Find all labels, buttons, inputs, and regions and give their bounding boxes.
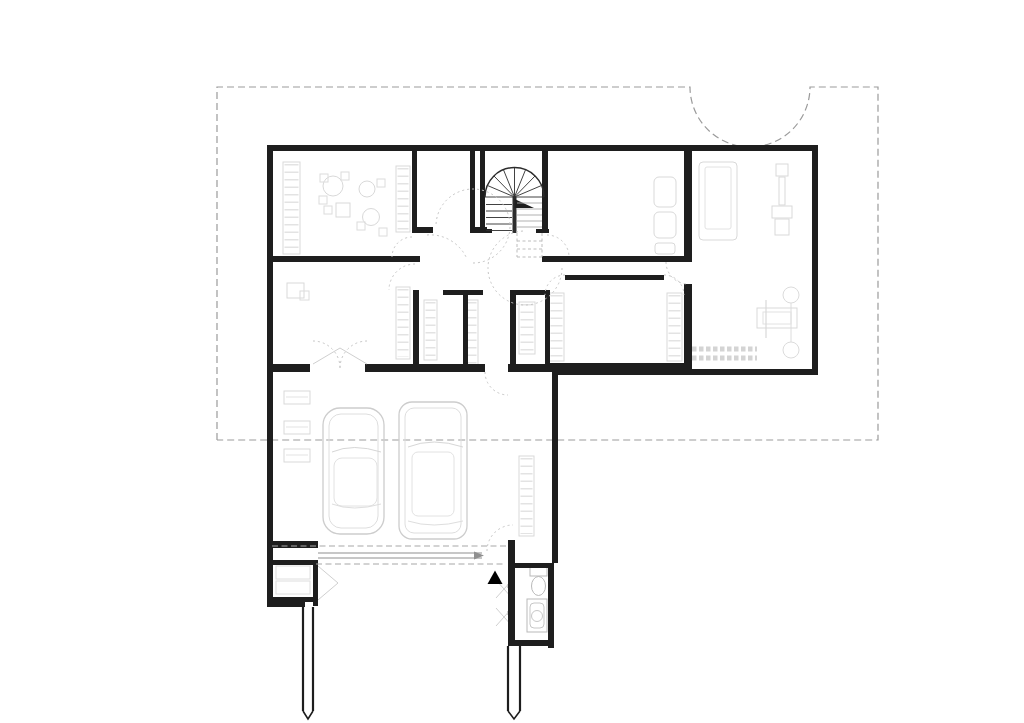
door-arc	[392, 237, 412, 257]
cable-pulley	[783, 342, 799, 358]
wall-stair-left	[480, 151, 485, 233]
wall-foot	[478, 229, 492, 233]
lounge-chair	[379, 228, 387, 236]
car-windshield	[332, 448, 381, 453]
lounge-chair	[377, 179, 385, 187]
weight-machine	[775, 219, 789, 235]
door-arc	[485, 372, 508, 395]
armchair	[654, 212, 676, 238]
lounge-table	[336, 203, 350, 217]
door-arc	[389, 264, 415, 290]
side-table	[655, 243, 675, 254]
store-door-leaf	[318, 583, 338, 600]
wall-cloak-right	[470, 151, 475, 229]
store-shelf	[276, 566, 310, 579]
wall-garage-right	[552, 369, 558, 563]
car-windshield	[408, 442, 463, 447]
retaining-wall-left-tip	[303, 711, 313, 719]
wall-closet-t	[443, 290, 483, 295]
weight-machine	[772, 206, 792, 218]
wall-garage-top-a	[272, 364, 310, 372]
wall-gym-left-upper	[684, 151, 692, 262]
car-roof	[334, 458, 377, 506]
armchair	[654, 177, 676, 207]
closet-shelf	[424, 300, 437, 360]
wall-wc-right	[548, 563, 554, 648]
door-arc	[547, 235, 569, 257]
wall-garage-top-b	[365, 364, 485, 372]
floor-plan-page	[0, 0, 1024, 723]
wall-garage-top-c	[508, 364, 552, 372]
entrance-arrow	[488, 571, 503, 585]
washer-drum	[530, 603, 544, 628]
weight-machine	[776, 164, 788, 176]
wall-lounge-right	[412, 151, 417, 229]
wall-exterior-right	[812, 145, 818, 374]
lounge-chair	[324, 206, 332, 214]
toilet-bowl	[532, 577, 546, 596]
wall-cellar-top	[565, 275, 664, 280]
stair-winder	[494, 176, 515, 197]
lounge-table	[323, 176, 343, 196]
wall-garage-bottom-left	[267, 541, 318, 548]
car-inner	[329, 414, 378, 528]
floor-plan-drawing	[0, 0, 1024, 723]
wall-wc-left	[508, 540, 515, 644]
car-body	[399, 402, 467, 539]
car-roof	[412, 452, 454, 516]
door-arc	[427, 235, 467, 259]
door-arc	[664, 275, 684, 295]
toilet-tank	[530, 567, 547, 576]
door-arc	[666, 262, 688, 284]
lounge-chair	[341, 172, 349, 180]
wall-closet-t2	[510, 290, 547, 295]
wall-store-bottom	[272, 597, 318, 602]
wall-store-top	[272, 560, 318, 565]
wall-hall-north-left	[272, 256, 420, 262]
stair-winder	[515, 176, 536, 197]
wall-stair-right	[542, 151, 548, 233]
wall-wc-top	[515, 563, 554, 568]
wall-foot	[412, 227, 433, 233]
wall-exterior-left	[267, 145, 273, 607]
store-shelf	[276, 581, 310, 594]
cable-pulley	[783, 287, 799, 303]
wall-foot	[536, 229, 549, 233]
wall-cellar-bottom	[545, 363, 692, 369]
double-door-arc	[340, 341, 367, 368]
double-door-leaf	[340, 348, 367, 364]
double-door-arc	[313, 341, 340, 368]
car-body	[323, 408, 384, 534]
wall-cellar-left	[545, 290, 550, 367]
stair-cut-wedge	[515, 199, 535, 208]
wall-exterior-bottom-right	[552, 369, 818, 375]
lounge-table	[359, 181, 375, 197]
lounge-chair	[357, 222, 365, 230]
wall-hall-north-right	[542, 256, 688, 262]
wall-exterior-top	[268, 145, 818, 151]
wall-closet-left	[413, 290, 419, 368]
retaining-wall-right-tip	[508, 711, 520, 719]
weight-machine	[779, 177, 785, 205]
wall-closet-mid	[463, 295, 468, 370]
washer-door	[532, 611, 543, 622]
treadmill-belt	[705, 167, 731, 229]
wall-closet-right	[510, 295, 516, 370]
double-door-leaf	[313, 348, 340, 364]
lounge-chair	[319, 196, 327, 204]
car-rear-window	[408, 521, 463, 525]
site-boundary	[217, 87, 878, 440]
store-door-leaf	[318, 566, 338, 583]
gym-bench-pad	[763, 312, 791, 324]
wall-gym-left-lower	[684, 284, 692, 369]
